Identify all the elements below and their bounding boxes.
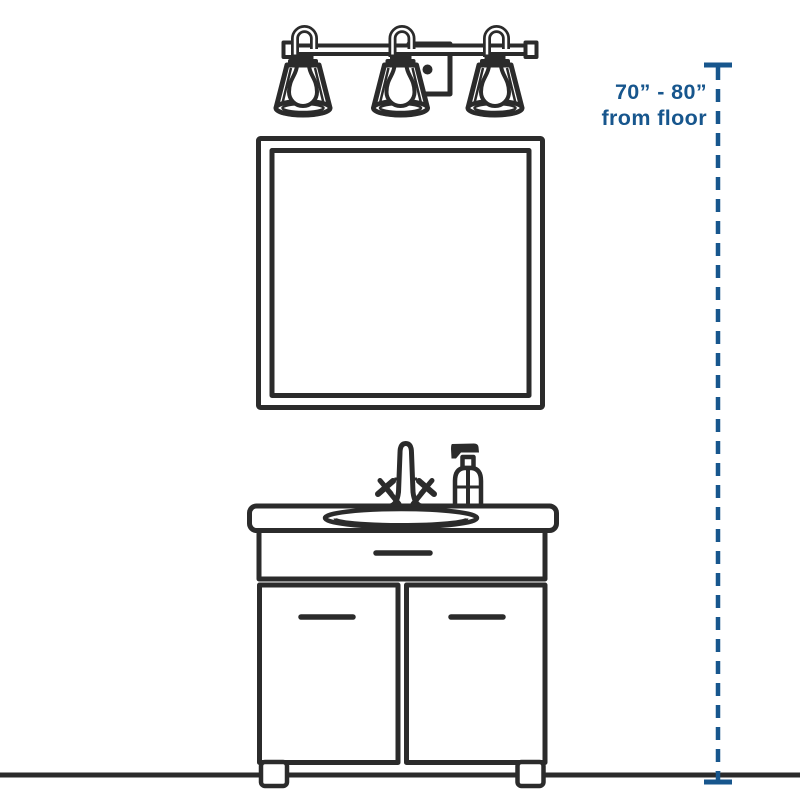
vanity-cabinet-icon [250,506,557,763]
height-annotation: 70” - 80” from floor [601,80,707,131]
soap-dispenser-icon [451,444,481,509]
sink-basin-icon [325,509,477,527]
cabinet-door-left [260,585,399,763]
faucet-icon [378,444,434,507]
height-dimension-line [704,65,732,782]
mirror-icon [259,139,543,408]
fixture-bar-right-cap [526,43,537,58]
diagram-stage: 70” - 80” from floor [0,0,800,800]
faucet-handle-left [378,481,399,505]
cabinet-door-right [407,585,546,763]
cabinet-foot-right [518,762,544,786]
height-reference-label: from floor [601,106,707,132]
vanity-light-fixture-icon [276,29,537,115]
faucet-handle-right [413,481,434,505]
cabinet-foot-left [261,762,287,786]
height-range-label: 70” - 80” [601,80,707,106]
vanity-light-right [468,29,522,115]
backplate-screw [423,65,433,75]
mirror-outer-frame [259,139,543,408]
